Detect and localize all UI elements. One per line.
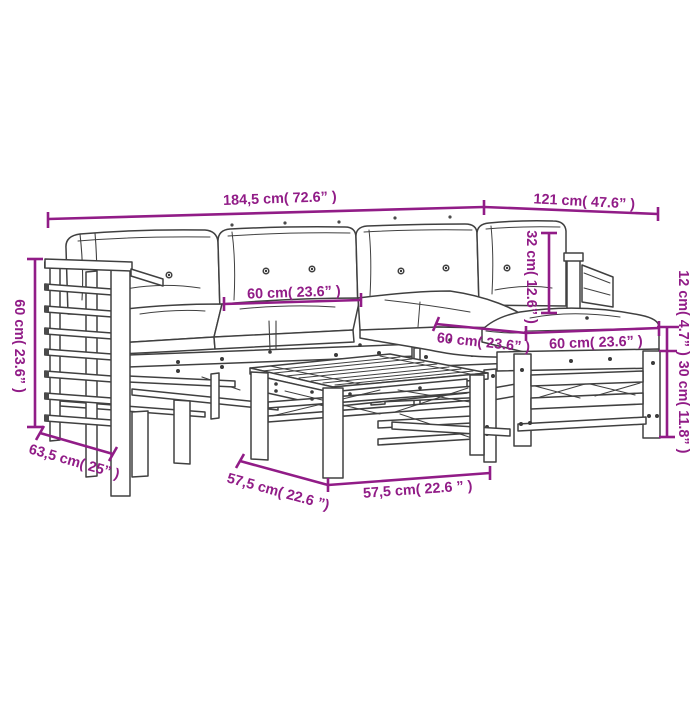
svg-text:60 cm( 23.6” ): 60 cm( 23.6” ) [247,283,341,302]
svg-text:30 cm( 11.8” ): 30 cm( 11.8” ) [675,361,691,454]
svg-text:60 cm( 23.6” ): 60 cm( 23.6” ) [11,299,27,393]
svg-text:12 cm( 4.7” ): 12 cm( 4.7” ) [675,270,691,356]
svg-text:32 cm( 12.6” ): 32 cm( 12.6” ) [523,230,539,324]
svg-text:60 cm( 23.6” ): 60 cm( 23.6” ) [549,333,643,352]
